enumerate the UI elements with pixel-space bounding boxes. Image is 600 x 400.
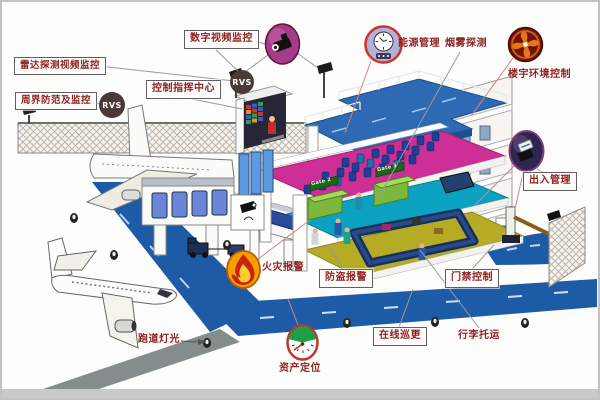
label-door-access-control: 门禁控制: [445, 269, 499, 288]
person: [356, 193, 363, 210]
label-fire-alarm: 火灾报警: [262, 262, 304, 275]
label-online-patrol: 在线巡更: [373, 327, 427, 346]
label-building-environment-control: 楼宇环境控制: [508, 69, 571, 82]
person: [344, 228, 351, 245]
label-energy-management: 能源管理: [398, 38, 440, 51]
runway-light-icon: [110, 250, 118, 260]
person: [335, 219, 342, 236]
runway-light-icon: [521, 318, 529, 328]
operator-person: [269, 116, 275, 122]
person: [312, 229, 319, 246]
deck-camera-icon: [317, 62, 333, 74]
runway-light-icon: [203, 338, 211, 348]
label-radar-video-surveillance: 雷达探测视频监控: [14, 57, 106, 75]
rvs-badge: RVS: [230, 70, 254, 94]
label-asset-locating: 资产定位: [279, 363, 321, 376]
label-intrusion-alarm: 防盗报警: [319, 269, 373, 288]
label-baggage-check: 行李托运: [458, 330, 500, 343]
runway-light-icon: [70, 213, 78, 223]
cctv-sign: [231, 195, 264, 230]
label-entry-exit-management: 出入管理: [523, 172, 577, 191]
card-access-icon: [508, 130, 545, 176]
label-digital-video-surveillance: 数字视频监控: [184, 30, 259, 49]
rvs-badge: RVS: [99, 92, 125, 118]
runway-light-icon: [343, 318, 351, 328]
label-runway-lights: 跑道灯光: [138, 334, 180, 347]
runway-light-icon: [431, 317, 439, 327]
camera-icon: [264, 23, 301, 69]
airport-security-diagram: RVS RVS 雷达探测视频监控 周界防范及监控 数字视频监控 控制指挥中心 能…: [0, 0, 600, 400]
asset-gauge-icon: [286, 324, 319, 365]
person: [419, 244, 426, 261]
flame-icon: [226, 250, 261, 293]
label-perimeter-monitoring: 周界防范及监控: [15, 92, 97, 110]
frame-bottom-band: [2, 389, 598, 398]
label-control-command-center: 控制指挥中心: [146, 80, 221, 99]
label-smoke-detection: 烟雾探测: [445, 38, 487, 51]
fan-icon: [507, 26, 544, 67]
runway-light-icon: [223, 240, 231, 250]
